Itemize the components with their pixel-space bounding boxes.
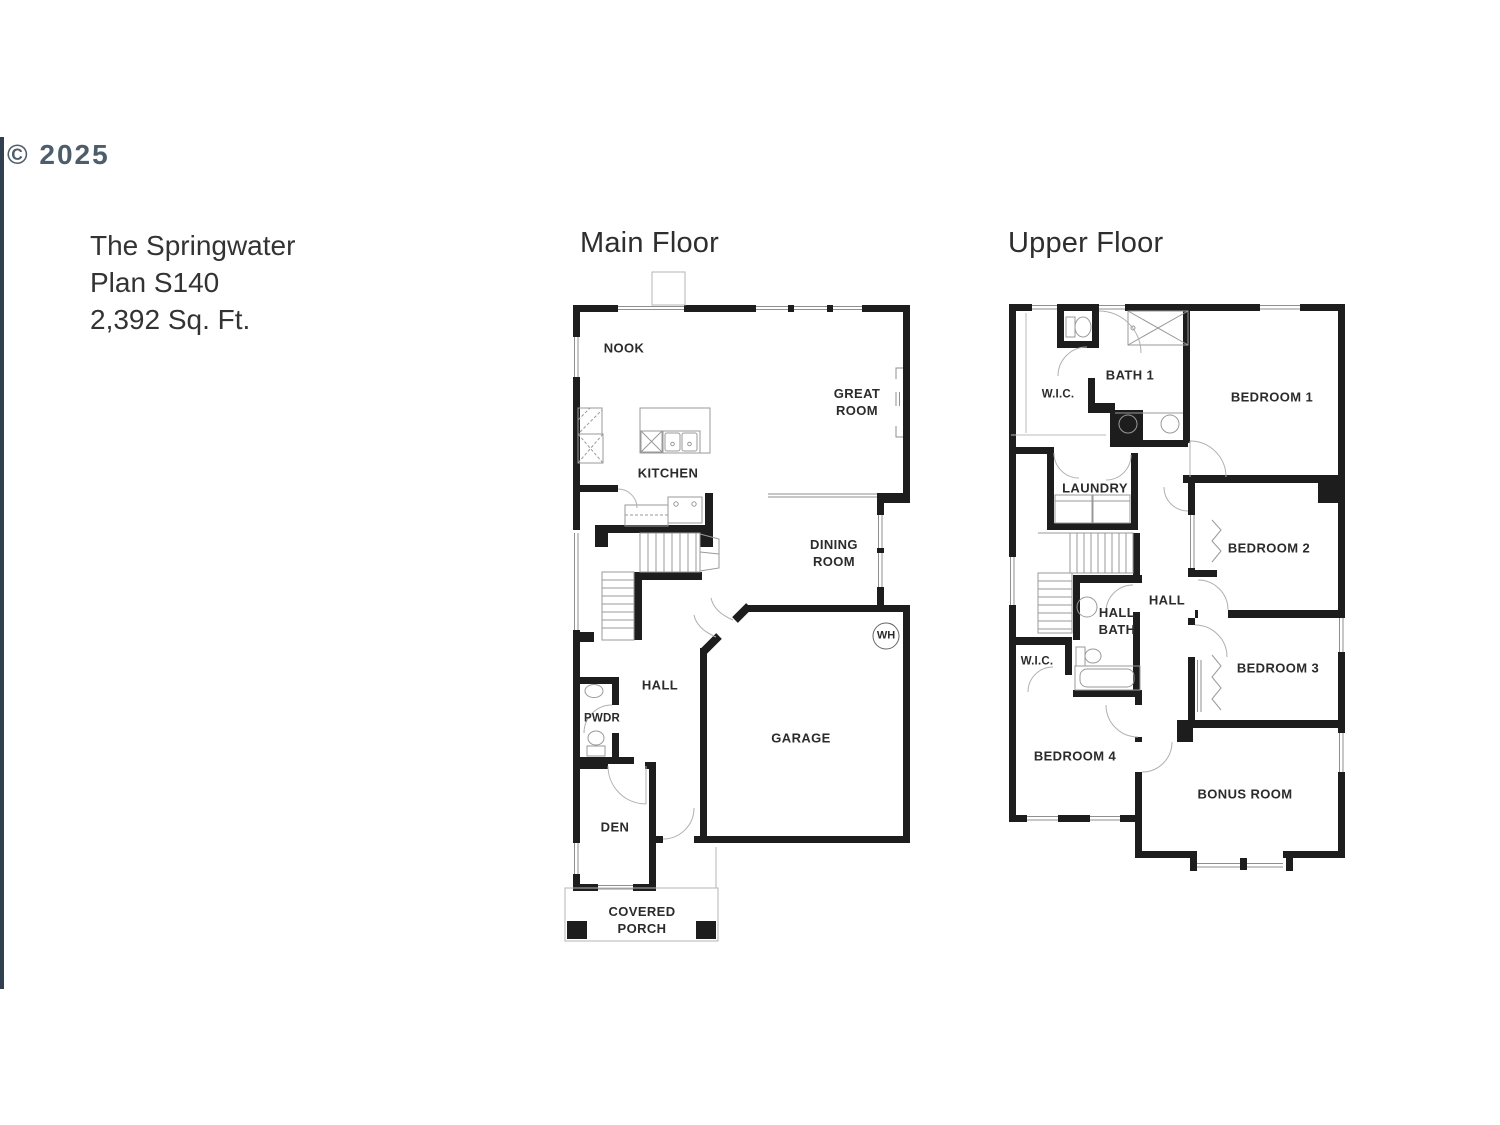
room-label-bedroom-4: BEDROOM 4 bbox=[1034, 748, 1116, 765]
room-label-bath-1: BATH 1 bbox=[1106, 367, 1154, 384]
plan-title-block: The Springwater Plan S140 2,392 Sq. Ft. bbox=[90, 227, 295, 338]
room-label-bonus-room: BONUS ROOM bbox=[1198, 786, 1293, 803]
room-label-kitchen: KITCHEN bbox=[638, 465, 699, 482]
room-label-upper-hall: HALL bbox=[1149, 592, 1185, 609]
room-label-powder: PWDR bbox=[584, 712, 620, 727]
room-label-wic-1: W.I.C. bbox=[1042, 388, 1075, 403]
powder-sink bbox=[585, 685, 603, 698]
plan-number: Plan S140 bbox=[90, 264, 295, 301]
washer bbox=[1055, 495, 1092, 523]
dryer bbox=[1093, 495, 1130, 523]
room-label-nook: NOOK bbox=[604, 340, 645, 357]
bedroom3-closet-doors bbox=[1212, 655, 1221, 710]
room-label-bedroom-2: BEDROOM 2 bbox=[1228, 540, 1310, 557]
plan-name: The Springwater bbox=[90, 227, 295, 264]
room-label-garage: GARAGE bbox=[771, 730, 830, 747]
hall-bath-toilet bbox=[1076, 647, 1085, 666]
powder-toilet bbox=[587, 746, 605, 756]
main-floor-stairs bbox=[602, 533, 719, 640]
plan-sqft: 2,392 Sq. Ft. bbox=[90, 301, 295, 338]
chimney bbox=[652, 272, 685, 305]
watermark-bar bbox=[0, 137, 4, 989]
room-label-bedroom-3: BEDROOM 3 bbox=[1237, 660, 1319, 677]
room-label-hall-bath: HALL BATH bbox=[1099, 604, 1136, 638]
bedroom2-closet-doors bbox=[1212, 520, 1221, 562]
room-label-dining-room: DINING ROOM bbox=[810, 536, 858, 570]
room-label-great-room: GREAT ROOM bbox=[834, 385, 881, 419]
main-floor-heading: Main Floor bbox=[580, 227, 719, 260]
room-label-covered-porch: COVERED PORCH bbox=[608, 903, 675, 937]
main-floor-plan bbox=[560, 262, 980, 952]
room-label-wic-2: W.I.C. bbox=[1021, 655, 1054, 670]
room-label-main-hall: HALL bbox=[642, 677, 678, 694]
room-label-den: DEN bbox=[601, 819, 630, 836]
upper-floor-plan bbox=[1000, 295, 1360, 880]
upper-floor-heading: Upper Floor bbox=[1008, 227, 1163, 260]
room-label-bedroom-1: BEDROOM 1 bbox=[1231, 389, 1313, 406]
bath1-toilet bbox=[1066, 317, 1075, 337]
floor-plan-page: © 2025 The Springwater Plan S140 2,392 S… bbox=[0, 0, 1500, 1125]
room-label-wh: WH bbox=[877, 628, 895, 645]
range bbox=[668, 497, 702, 523]
copyright-text: © 2025 bbox=[7, 139, 110, 171]
room-label-laundry: LAUNDRY bbox=[1062, 480, 1128, 497]
